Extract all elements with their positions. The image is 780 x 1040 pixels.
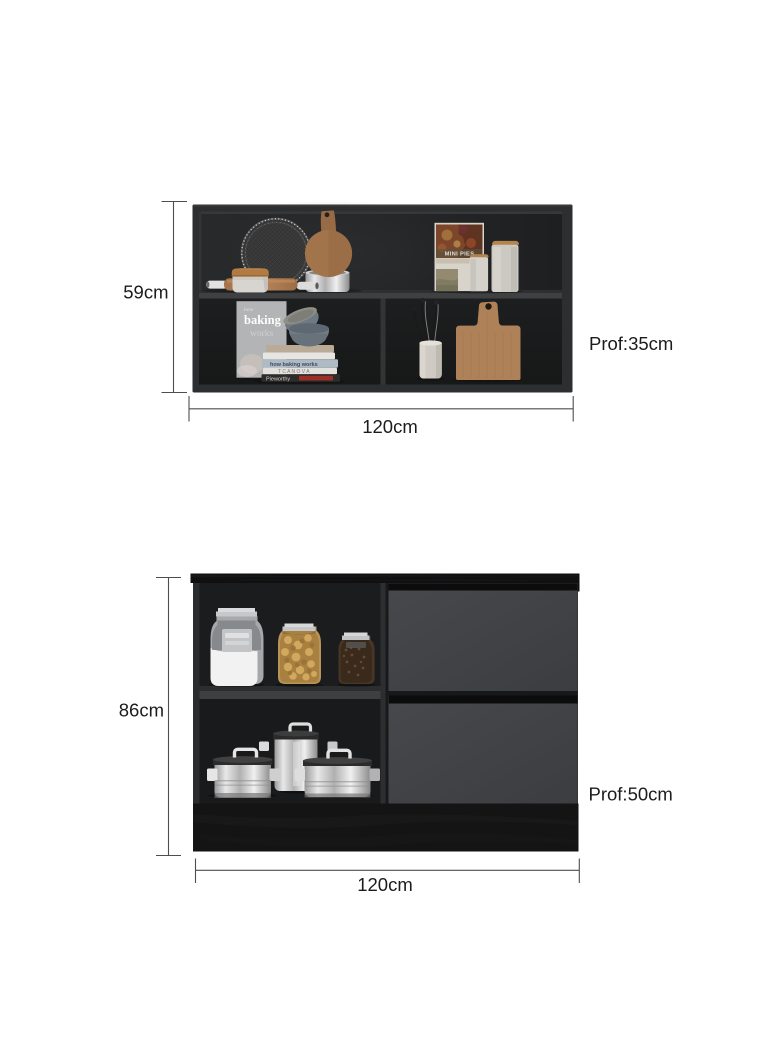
svg-text:T C A N O V A: T C A N O V A	[278, 369, 310, 375]
svg-text:baking: baking	[244, 313, 282, 327]
svg-text:120cm: 120cm	[357, 874, 413, 895]
svg-text:86cm: 86cm	[119, 700, 164, 721]
svg-text:59cm: 59cm	[123, 282, 168, 303]
svg-text:120cm: 120cm	[362, 416, 418, 437]
svg-text:works: works	[250, 329, 274, 339]
svg-text:Prof:50cm: Prof:50cm	[589, 784, 673, 805]
svg-text:how baking works: how baking works	[270, 362, 318, 368]
svg-text:Prof:35cm: Prof:35cm	[589, 333, 673, 354]
svg-text:how: how	[244, 307, 254, 313]
svg-text:MINI PIES: MINI PIES	[445, 252, 475, 258]
svg-text:Pieworthy: Pieworthy	[266, 376, 290, 382]
